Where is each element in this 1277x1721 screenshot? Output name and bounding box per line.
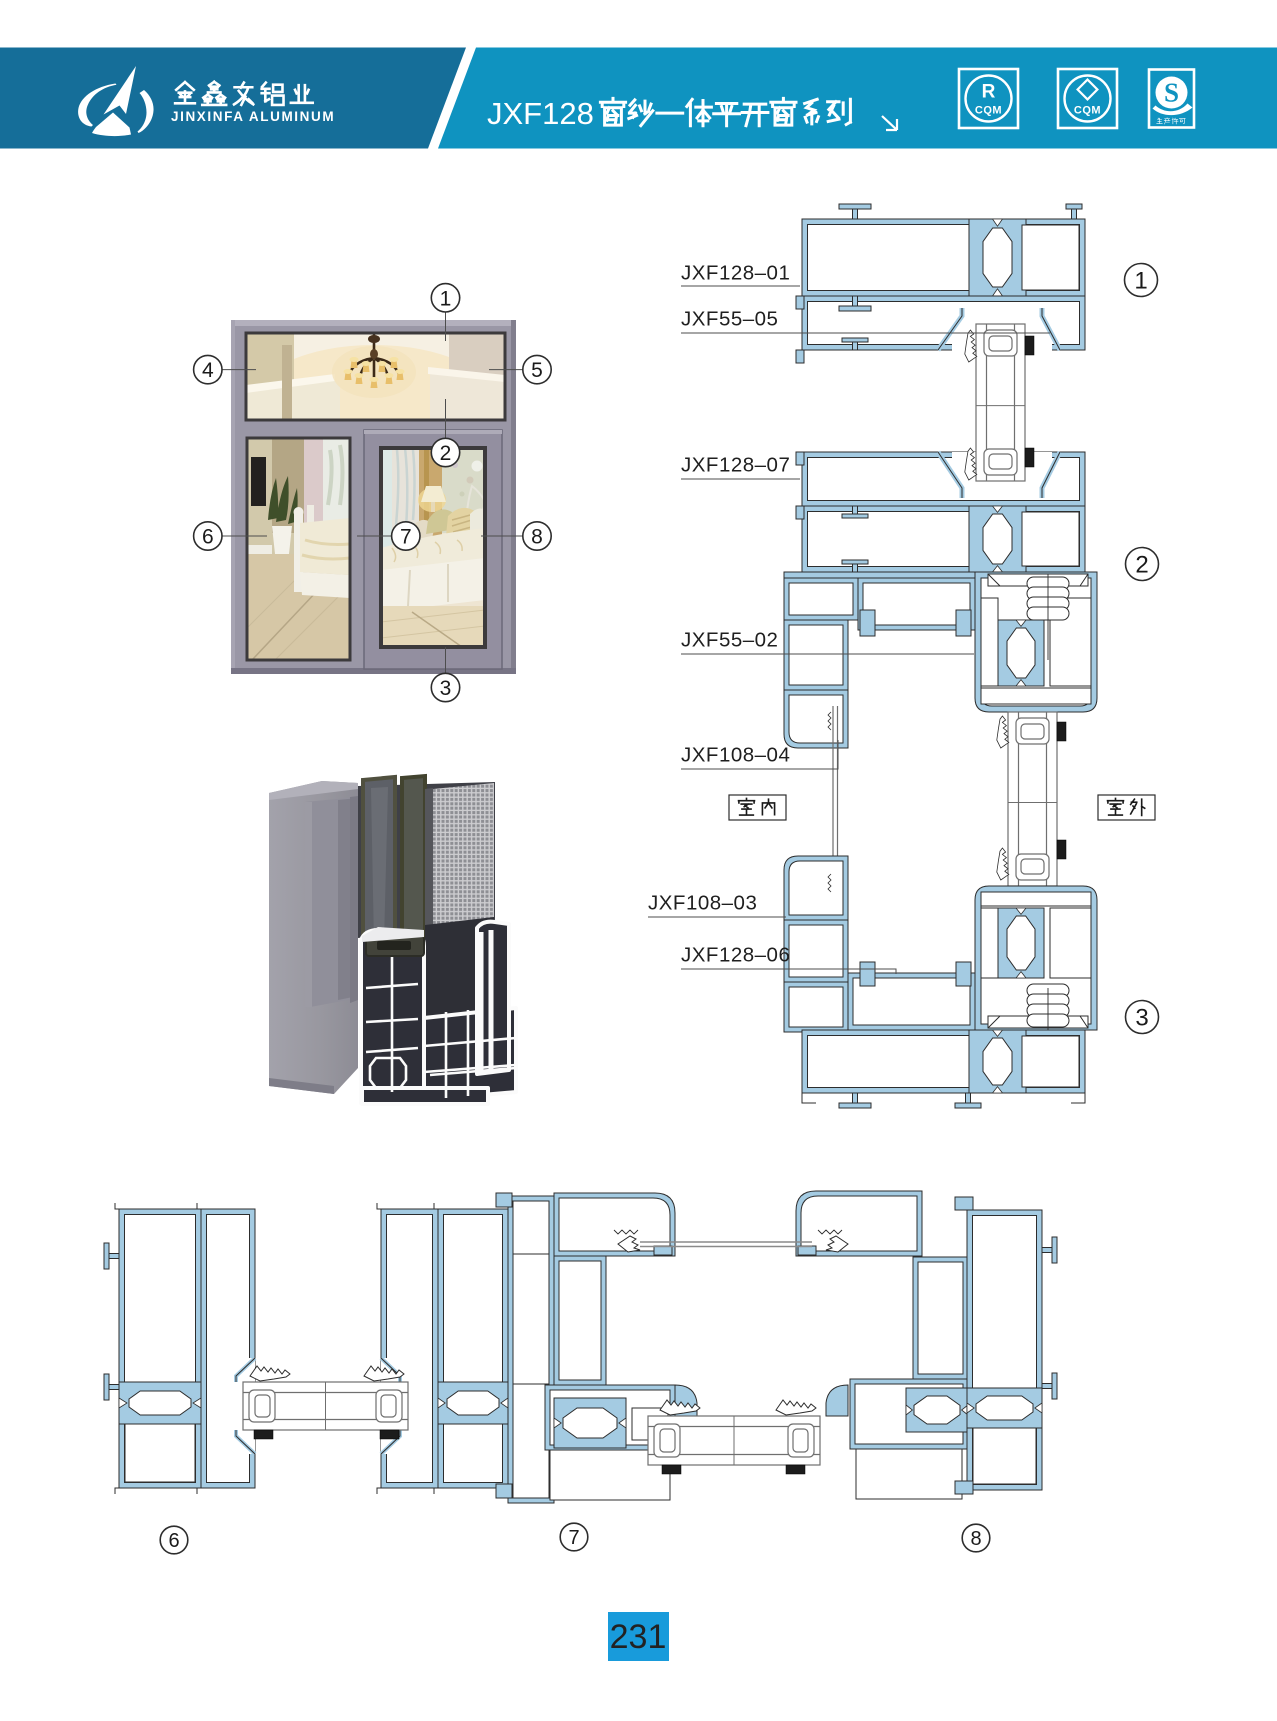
svg-text:1: 1: [1134, 268, 1147, 295]
svg-text:JXF128–06: JXF128–06: [681, 944, 790, 967]
svg-text:JXF128–07: JXF128–07: [681, 454, 790, 477]
svg-text:7: 7: [568, 1527, 579, 1549]
svg-text:3: 3: [1135, 1005, 1148, 1032]
svg-text:JXF128: JXF128: [487, 96, 594, 131]
svg-text:JXF55–02: JXF55–02: [681, 629, 778, 652]
svg-text:231: 231: [610, 1618, 667, 1656]
svg-text:2: 2: [1135, 552, 1148, 579]
svg-text:JXF55–05: JXF55–05: [681, 308, 778, 331]
svg-text:6: 6: [168, 1530, 179, 1552]
svg-text:JXF108–03: JXF108–03: [648, 892, 757, 915]
svg-text:CQM: CQM: [975, 105, 1002, 117]
svg-text:1: 1: [440, 287, 452, 310]
svg-text:JXF128–01: JXF128–01: [681, 262, 790, 285]
svg-text:CQM: CQM: [1074, 105, 1101, 117]
svg-text:2: 2: [440, 442, 452, 465]
svg-text:JXF108–04: JXF108–04: [681, 744, 790, 767]
svg-text:S: S: [1164, 78, 1179, 108]
svg-text:JINXINFA ALUMINUM: JINXINFA ALUMINUM: [171, 109, 335, 124]
svg-text:8: 8: [970, 1528, 981, 1550]
svg-text:7: 7: [400, 526, 412, 549]
svg-text:R: R: [982, 82, 996, 103]
svg-text:3: 3: [440, 677, 452, 700]
svg-text:4: 4: [202, 359, 214, 382]
svg-text:6: 6: [202, 526, 214, 549]
svg-text:8: 8: [531, 526, 543, 549]
svg-text:5: 5: [531, 359, 543, 382]
